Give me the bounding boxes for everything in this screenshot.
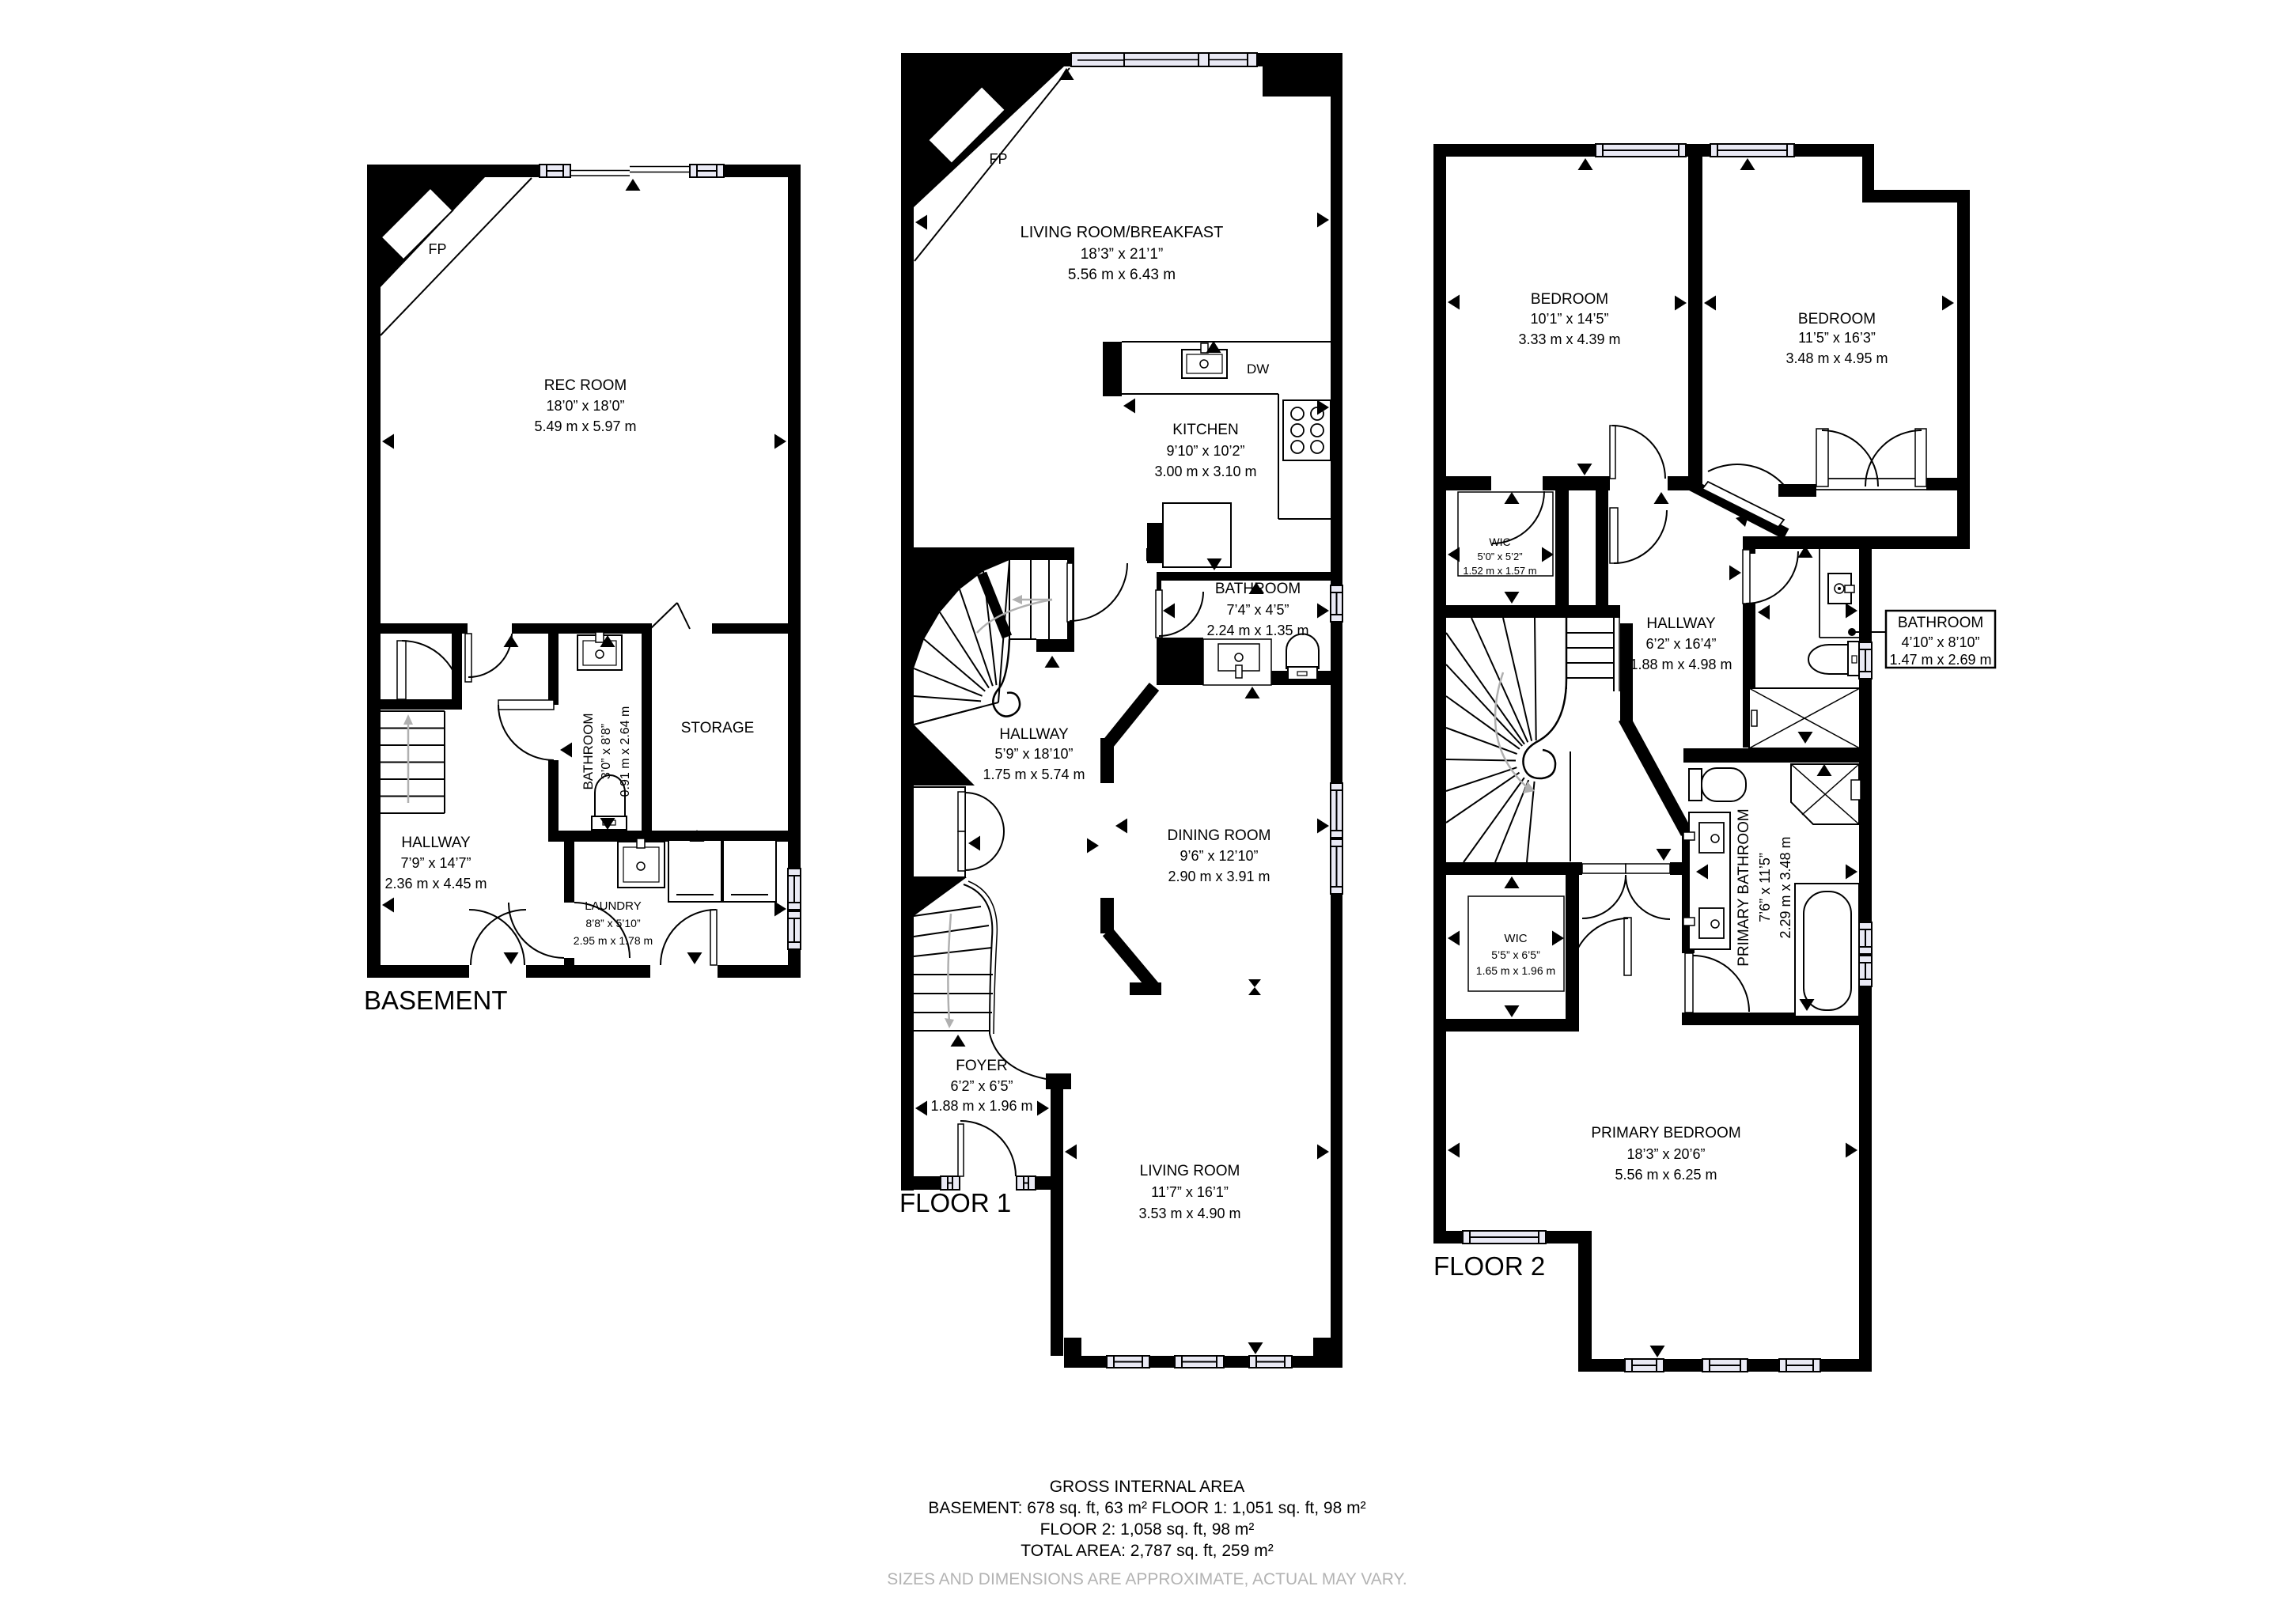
svg-text:LIVING ROOM: LIVING ROOM	[1140, 1163, 1240, 1179]
svg-text:2.36 m x 4.45 m: 2.36 m x 4.45 m	[384, 876, 487, 891]
svg-text:5’9” x 18’10”: 5’9” x 18’10”	[994, 746, 1073, 762]
svg-text:7’6” x 11’5”: 7’6” x 11’5”	[1757, 853, 1773, 922]
svg-text:BASEMENT: BASEMENT	[364, 986, 508, 1015]
svg-text:REC ROOM: REC ROOM	[544, 377, 627, 394]
svg-text:WIC: WIC	[1504, 932, 1527, 945]
svg-text:FP: FP	[428, 241, 446, 257]
svg-text:BATHROOM: BATHROOM	[581, 714, 596, 790]
svg-text:TOTAL AREA: 2,787 sq. ft, 259: TOTAL AREA: 2,787 sq. ft, 259 m²	[1021, 1542, 1273, 1560]
svg-text:3.53 m x 4.90 m: 3.53 m x 4.90 m	[1138, 1206, 1240, 1221]
svg-text:5.56 m x 6.25 m: 5.56 m x 6.25 m	[1615, 1167, 1717, 1183]
svg-text:BASEMENT: 678 sq. ft, 63 m² FL: BASEMENT: 678 sq. ft, 63 m² FLOOR 1: 1,0…	[928, 1499, 1365, 1517]
svg-text:3.33 m x 4.39 m: 3.33 m x 4.39 m	[1518, 331, 1620, 347]
svg-text:5.49 m x 5.97 m: 5.49 m x 5.97 m	[534, 418, 636, 434]
svg-text:7’9” x 14’7”: 7’9” x 14’7”	[400, 855, 471, 871]
svg-text:KITCHEN: KITCHEN	[1172, 422, 1238, 438]
svg-text:PRIMARY BATHROOM: PRIMARY BATHROOM	[1736, 808, 1752, 967]
svg-text:18’3” x 21’1”: 18’3” x 21’1”	[1081, 246, 1164, 263]
svg-text:0.91 m x 2.64 m: 0.91 m x 2.64 m	[619, 706, 632, 797]
svg-text:5.56 m x 6.43 m: 5.56 m x 6.43 m	[1068, 267, 1176, 283]
svg-text:HALLWAY: HALLWAY	[1646, 615, 1716, 632]
svg-text:1.88 m x 1.96 m: 1.88 m x 1.96 m	[930, 1098, 1032, 1114]
svg-text:1.88 m x 4.98 m: 1.88 m x 4.98 m	[1630, 657, 1732, 672]
svg-text:HALLWAY: HALLWAY	[401, 835, 471, 851]
svg-text:BEDROOM: BEDROOM	[1798, 311, 1876, 327]
svg-text:FOYER: FOYER	[956, 1058, 1007, 1074]
svg-text:3.00 m x 3.10 m: 3.00 m x 3.10 m	[1154, 464, 1256, 479]
svg-text:5’5” x 6’5”: 5’5” x 6’5”	[1491, 948, 1540, 961]
svg-text:1.75 m x 5.74 m: 1.75 m x 5.74 m	[983, 767, 1085, 782]
svg-text:HALLWAY: HALLWAY	[999, 726, 1069, 743]
svg-text:1.65 m x 1.96 m: 1.65 m x 1.96 m	[1476, 964, 1555, 977]
svg-text:FLOOR 2: FLOOR 2	[1433, 1251, 1545, 1281]
svg-text:11’7” x 16’1”: 11’7” x 16’1”	[1151, 1184, 1229, 1200]
svg-text:BEDROOM: BEDROOM	[1531, 291, 1608, 308]
svg-text:1.52 m x 1.57 m: 1.52 m x 1.57 m	[1463, 565, 1536, 577]
svg-text:FLOOR 2: 1,058 sq. ft, 98 m²: FLOOR 2: 1,058 sq. ft, 98 m²	[1040, 1520, 1255, 1539]
svg-text:BATHROOM: BATHROOM	[1898, 615, 1983, 631]
svg-text:18’0” x 18’0”: 18’0” x 18’0”	[546, 398, 624, 414]
svg-text:FP: FP	[989, 151, 1007, 167]
svg-text:3.48 m x 4.95 m: 3.48 m x 4.95 m	[1785, 350, 1888, 366]
svg-text:PRIMARY BEDROOM: PRIMARY BEDROOM	[1591, 1125, 1740, 1141]
svg-text:3’0” x 8’8”: 3’0” x 8’8”	[600, 724, 613, 779]
svg-text:DINING ROOM: DINING ROOM	[1168, 827, 1271, 844]
svg-text:LIVING ROOM/BREAKFAST: LIVING ROOM/BREAKFAST	[1021, 224, 1224, 241]
svg-text:FLOOR 1: FLOOR 1	[899, 1188, 1011, 1217]
svg-text:5’0” x 5’2”: 5’0” x 5’2”	[1477, 551, 1522, 562]
svg-text:6’2” x 6’5”: 6’2” x 6’5”	[950, 1078, 1013, 1094]
svg-text:9’10” x 10’2”: 9’10” x 10’2”	[1166, 443, 1244, 459]
svg-text:DW: DW	[1247, 362, 1269, 377]
svg-text:BATHROOM: BATHROOM	[1215, 581, 1301, 597]
svg-text:2.24 m x 1.35 m: 2.24 m x 1.35 m	[1206, 623, 1308, 638]
svg-text:SIZES AND DIMENSIONS ARE APPRO: SIZES AND DIMENSIONS ARE APPROXIMATE, AC…	[887, 1570, 1407, 1588]
svg-text:2.95 m x 1.78 m: 2.95 m x 1.78 m	[574, 934, 653, 947]
svg-text:6’2” x 16’4”: 6’2” x 16’4”	[1645, 636, 1716, 652]
svg-text:4’10” x 8’10”: 4’10” x 8’10”	[1901, 634, 1979, 650]
svg-text:8’8” x 5’10”: 8’8” x 5’10”	[585, 917, 641, 929]
svg-text:10’1” x 14’5”: 10’1” x 14’5”	[1530, 311, 1608, 327]
svg-text:LAUNDRY: LAUNDRY	[585, 899, 641, 913]
svg-text:WIC: WIC	[1489, 536, 1510, 548]
svg-text:GROSS INTERNAL AREA: GROSS INTERNAL AREA	[1050, 1478, 1245, 1496]
svg-text:2.90 m x 3.91 m: 2.90 m x 3.91 m	[1168, 869, 1270, 884]
svg-text:1.47 m x 2.69 m: 1.47 m x 2.69 m	[1889, 652, 1991, 668]
svg-text:STORAGE: STORAGE	[681, 720, 755, 736]
svg-text:2.29 m x 3.48 m: 2.29 m x 3.48 m	[1778, 836, 1793, 938]
svg-text:7’4” x 4’5”: 7’4” x 4’5”	[1226, 602, 1289, 618]
svg-text:9’6” x 12’10”: 9’6” x 12’10”	[1180, 848, 1258, 864]
svg-text:18’3” x 20’6”: 18’3” x 20’6”	[1626, 1146, 1705, 1162]
svg-text:11’5” x 16’3”: 11’5” x 16’3”	[1798, 330, 1876, 346]
